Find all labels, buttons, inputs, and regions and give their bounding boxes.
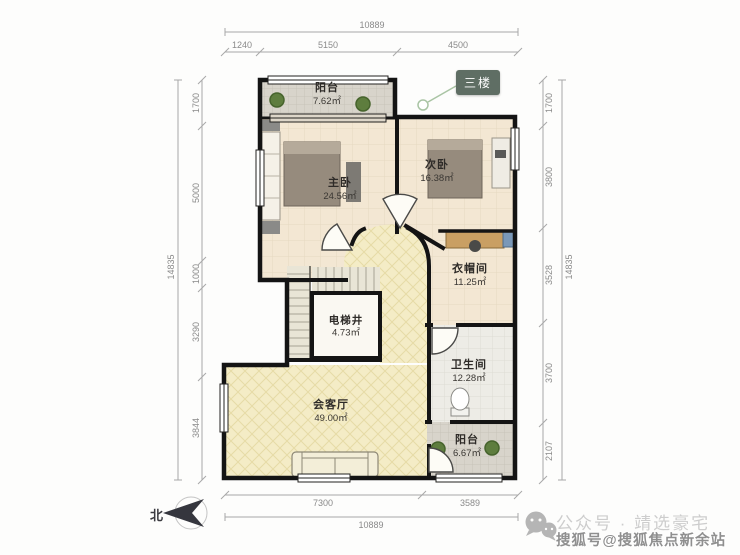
dresser: [492, 138, 510, 188]
room-label-second-bedroom: 次卧 16.38㎡: [420, 159, 453, 185]
dim-left-seg: 5000: [191, 183, 201, 203]
room-label-balcony-top: 阳台 7.62㎡: [313, 82, 341, 108]
toilet: [451, 388, 469, 416]
dim-bottom-seg: 7300: [313, 498, 333, 508]
floor-badge-leader: [418, 86, 456, 110]
dim-bottom-overall: 10889: [358, 520, 383, 530]
room-label-bathroom: 卫生间 12.28㎡: [451, 359, 487, 385]
dim-top-seg: 5150: [318, 40, 338, 50]
dim-right-seg: 3700: [544, 363, 554, 383]
dim-left-overall: 14835: [166, 254, 176, 279]
dim-left-seg: 1700: [191, 93, 201, 113]
floor-badge: 三楼: [456, 70, 500, 95]
sofa: [292, 452, 378, 477]
room-label-master-bedroom: 主卧 24.56㎡: [323, 177, 356, 203]
room-label-balcony-bottom: 阳台 6.67㎡: [453, 434, 481, 460]
dim-right-seg: 2107: [544, 441, 554, 461]
dim-bottom-seg: 3589: [460, 498, 480, 508]
sohu-watermark: 搜狐号@搜狐焦点新余站: [556, 529, 726, 550]
dim-left-seg: 3290: [191, 322, 201, 342]
dim-right-seg: 3800: [544, 167, 554, 187]
dim-top-overall: 10889: [359, 20, 384, 30]
north-arrow-icon: [163, 497, 207, 529]
room-label-living-room: 会客厅 49.00㎡: [313, 399, 349, 425]
dim-top-seg: 4500: [448, 40, 468, 50]
floor-plan-canvas: [0, 0, 740, 555]
dim-right-overall: 14835: [564, 254, 574, 279]
dim-right-seg: 3528: [544, 265, 554, 285]
dim-right-seg: 1700: [544, 93, 554, 113]
room-label-cloakroom: 衣帽间 11.25㎡: [452, 263, 488, 289]
room-label-elevator: 电梯井 4.73㎡: [329, 315, 364, 340]
floor-plan-page: 阳台 7.62㎡ 主卧 24.56㎡ 次卧 16.38㎡ 衣帽间 11.25㎡ …: [0, 0, 740, 555]
wechat-icon: [526, 512, 557, 542]
dim-left-seg: 3844: [191, 418, 201, 438]
north-label: 北: [150, 505, 163, 524]
dim-top-seg: 1240: [232, 40, 252, 50]
dim-left-seg: 1000: [191, 264, 201, 284]
